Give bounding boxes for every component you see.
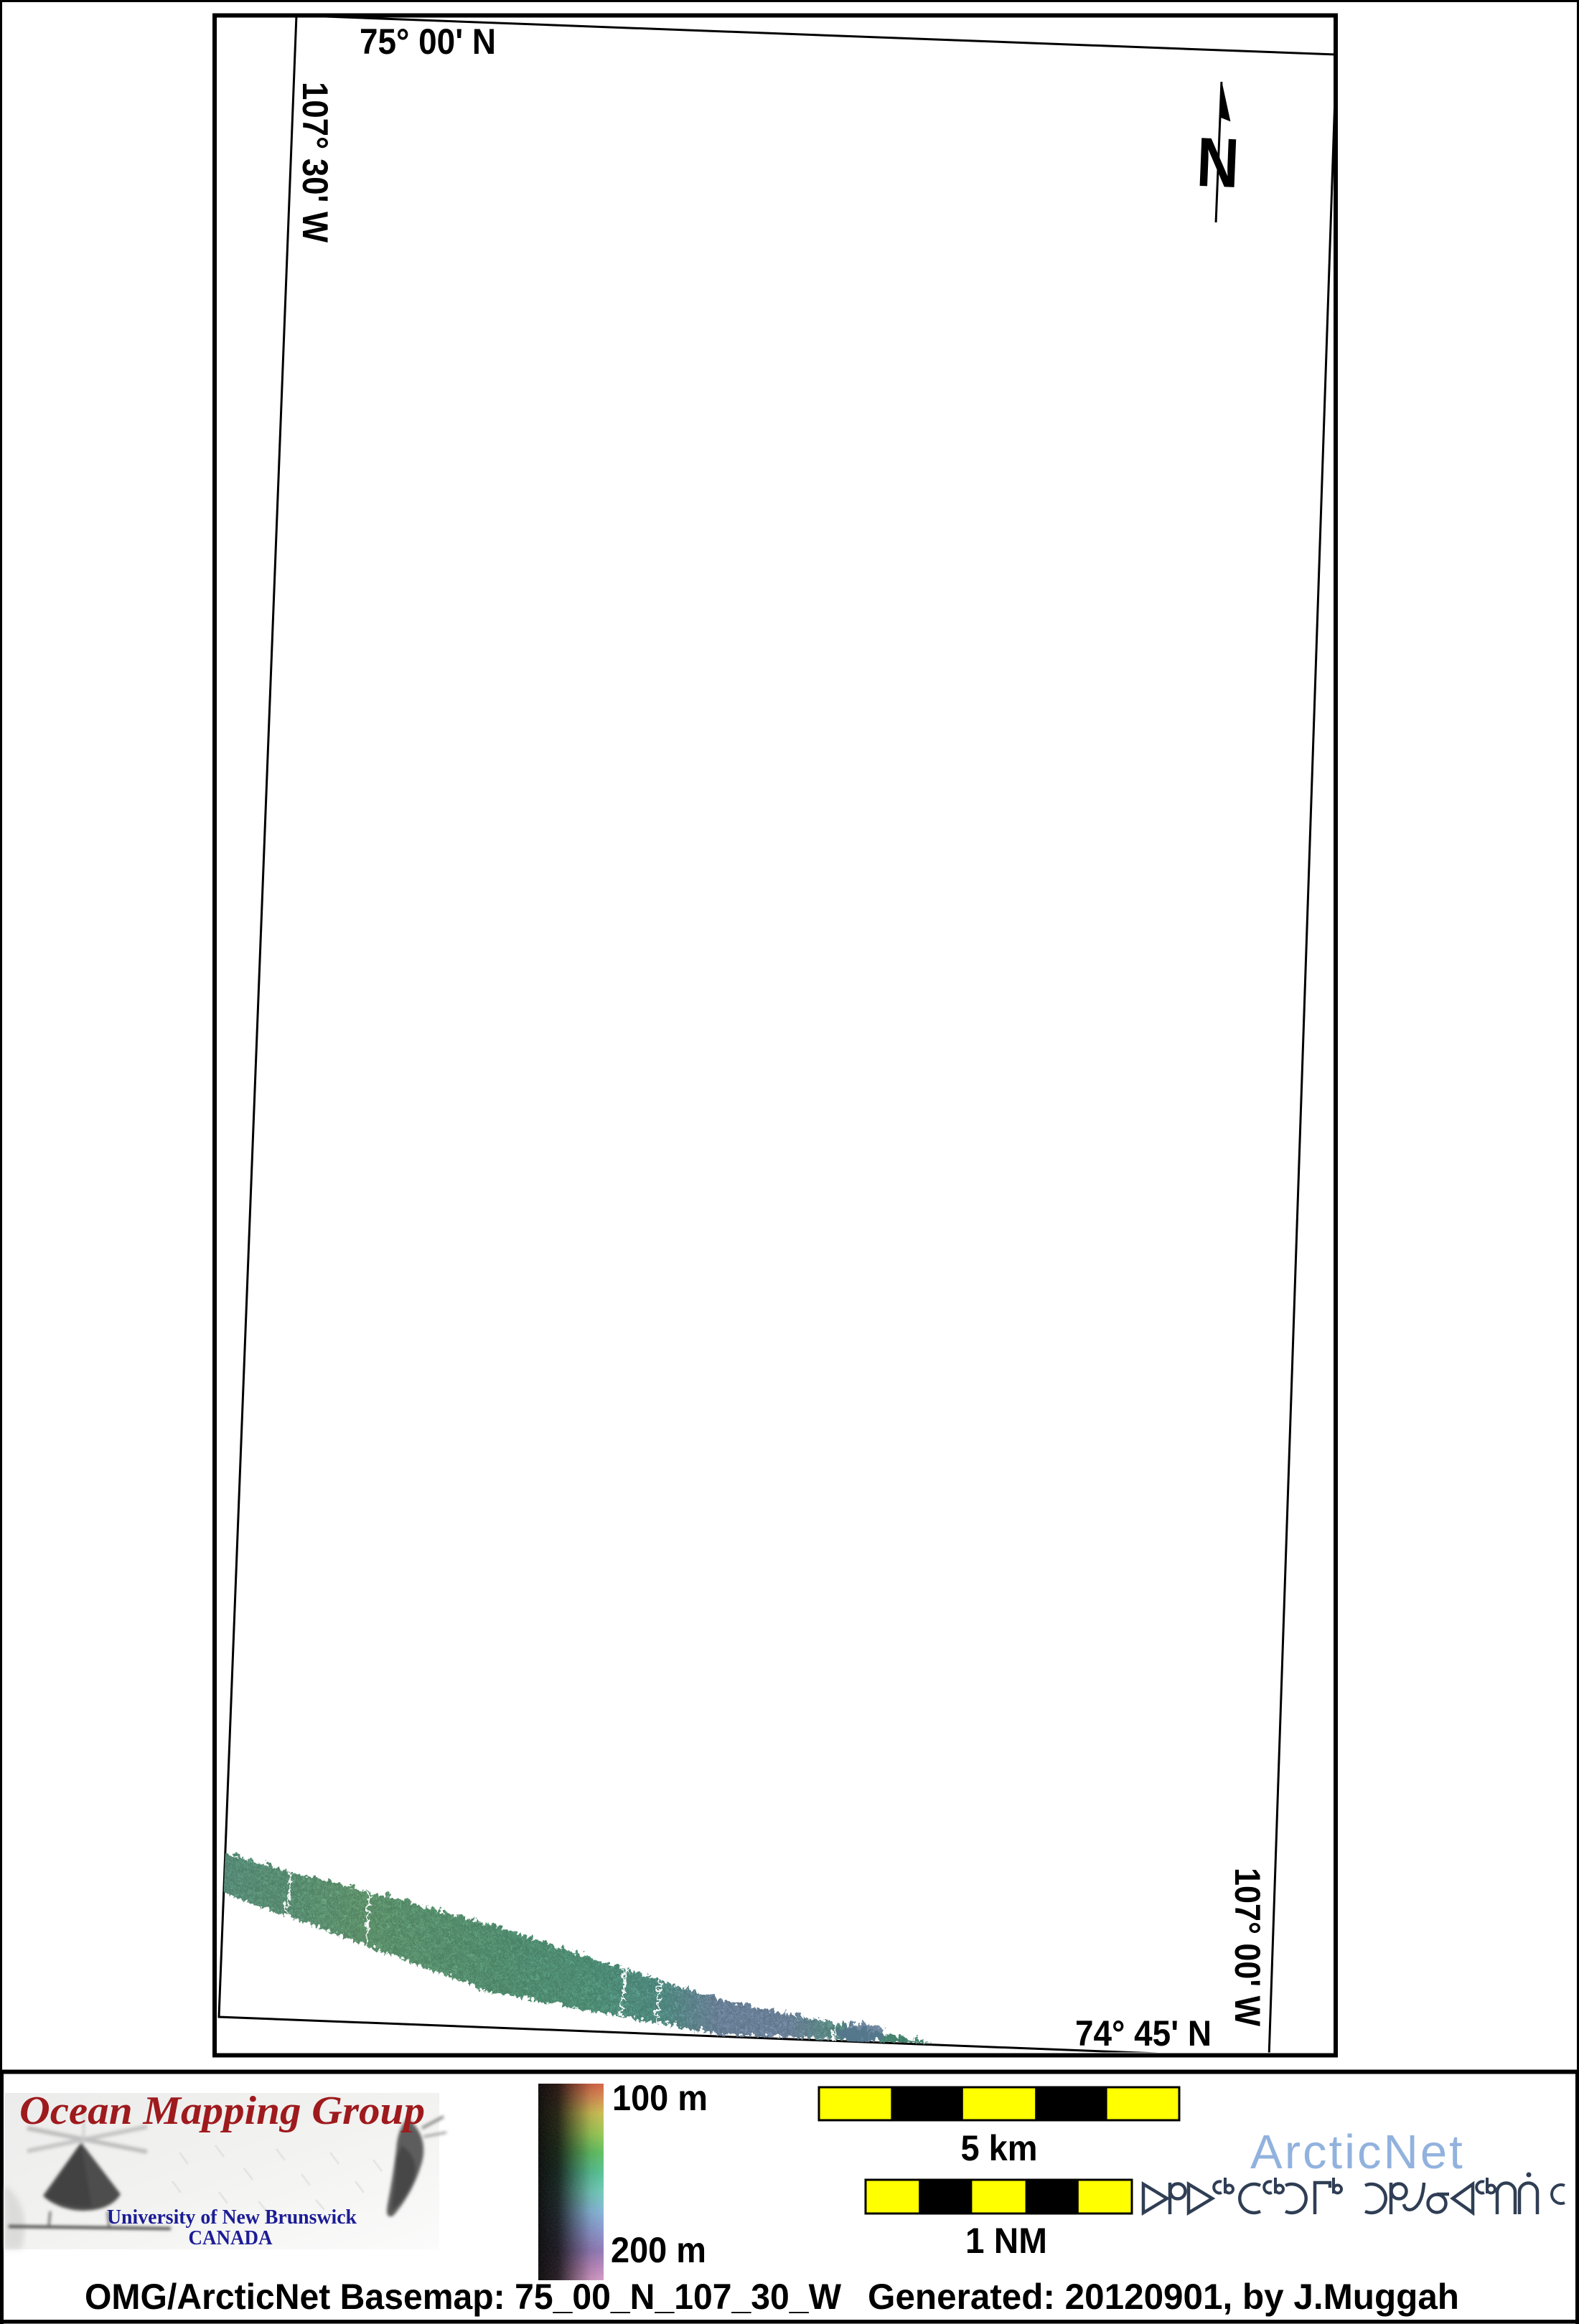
svg-text:75° 00' N: 75° 00' N	[360, 22, 496, 62]
svg-text:Generated: 20120901, by J.Mugg: Generated: 20120901, by J.Muggah	[868, 2277, 1459, 2317]
svg-text:74° 45' N: 74° 45' N	[1075, 2013, 1212, 2054]
svg-text:100 m: 100 m	[612, 2078, 708, 2118]
svg-text:ArcticNet: ArcticNet	[1250, 2125, 1465, 2179]
svg-text:200 m: 200 m	[611, 2230, 706, 2270]
svg-text:University of New Brunswick: University of New Brunswick	[107, 2206, 357, 2229]
svg-text:107° 30' W: 107° 30' W	[295, 82, 335, 243]
svg-text:Ocean Mapping Group: Ocean Mapping Group	[19, 2089, 425, 2133]
svg-text:CANADA: CANADA	[189, 2226, 273, 2249]
svg-text:OMG/ArcticNet Basemap: 75_00_N: OMG/ArcticNet Basemap: 75_00_N_107_30_W	[85, 2277, 842, 2317]
svg-text:5 km: 5 km	[961, 2128, 1038, 2168]
svg-text:N: N	[1195, 123, 1240, 202]
svg-text:1 NM: 1 NM	[965, 2221, 1047, 2261]
svg-text:107° 00' W: 107° 00' W	[1227, 1868, 1268, 2027]
